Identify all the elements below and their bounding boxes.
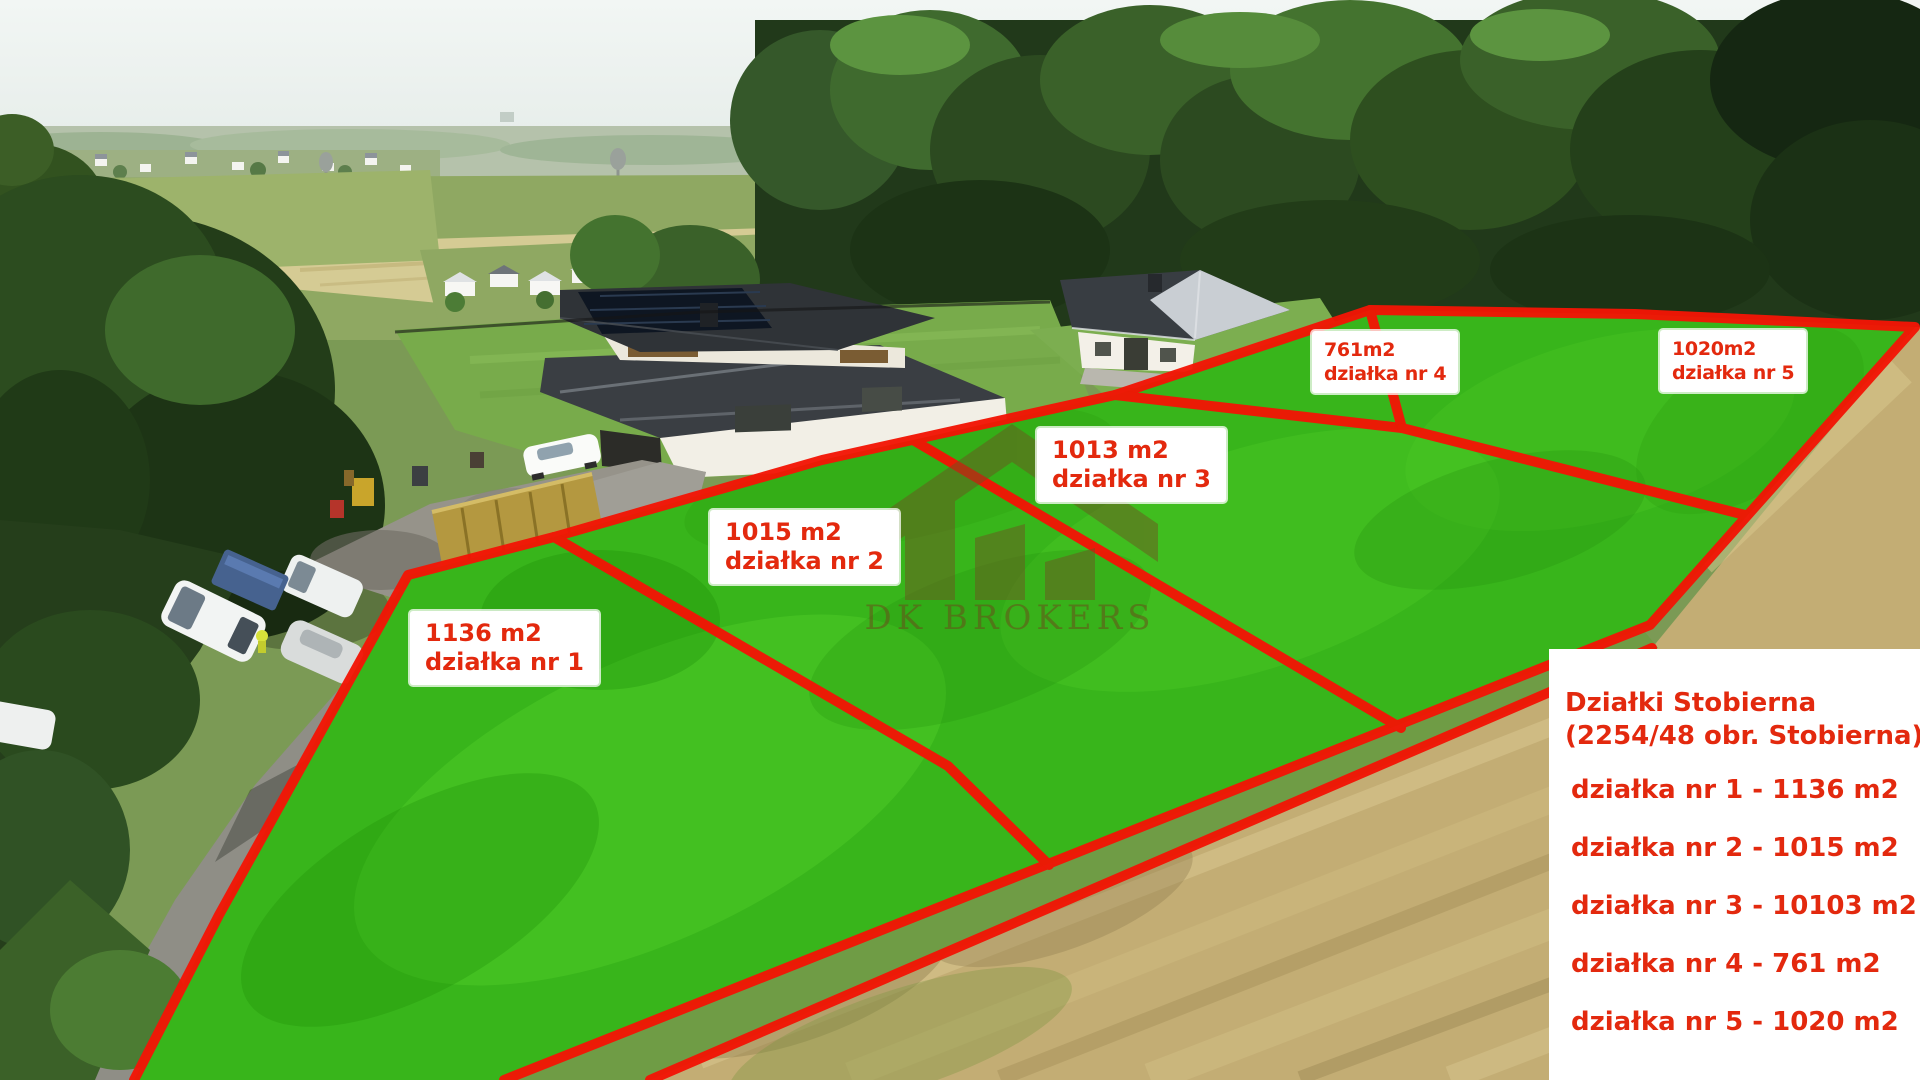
- plot-2-name: działka nr 2: [725, 547, 884, 576]
- info-title-line1: Działki Stobierna: [1565, 687, 1912, 720]
- plot-label-3: 1013 m2 działka nr 3: [1037, 428, 1226, 502]
- plot-2-area: 1015 m2: [725, 518, 884, 547]
- plot-1-name: działka nr 1: [425, 648, 584, 677]
- plot-3-name: działka nr 3: [1052, 465, 1211, 494]
- worker-person: [256, 630, 268, 642]
- plot-5-area: 1020m2: [1672, 337, 1794, 361]
- info-title-line2: (2254/48 obr. Stobierna): [1565, 720, 1912, 753]
- watermark-brand: DK BROKERS: [845, 598, 1175, 638]
- aerial-photo-scene: DK BROKERS 1136 m2 działka nr 1 1015 m2 …: [0, 0, 1920, 1080]
- equipment: [352, 478, 374, 506]
- plot-4-area: 761m2: [1324, 338, 1446, 362]
- info-item-plot-5: działka nr 5 - 1020 m2: [1565, 1009, 1912, 1035]
- plot-label-1: 1136 m2 działka nr 1: [410, 611, 599, 685]
- plot-5-name: działka nr 5: [1672, 361, 1794, 385]
- plot-label-5: 1020m2 działka nr 5: [1660, 330, 1806, 392]
- plot-label-2: 1015 m2 działka nr 2: [710, 510, 899, 584]
- plot-1-area: 1136 m2: [425, 619, 584, 648]
- logo-bar-tall: [905, 498, 955, 600]
- info-item-plot-4: działka nr 4 - 761 m2: [1565, 951, 1912, 977]
- plot-4-name: działka nr 4: [1324, 362, 1446, 386]
- info-panel: Działki Stobierna (2254/48 obr. Stobiern…: [1549, 649, 1920, 1080]
- info-item-plot-2: działka nr 2 - 1015 m2: [1565, 835, 1912, 861]
- info-item-plot-3: działka nr 3 - 10103 m2: [1565, 893, 1912, 919]
- info-panel-title: Działki Stobierna (2254/48 obr. Stobiern…: [1565, 687, 1912, 753]
- plot-3-area: 1013 m2: [1052, 436, 1211, 465]
- plot-label-4: 761m2 działka nr 4: [1312, 331, 1458, 393]
- info-item-plot-1: działka nr 1 - 1136 m2: [1565, 777, 1912, 803]
